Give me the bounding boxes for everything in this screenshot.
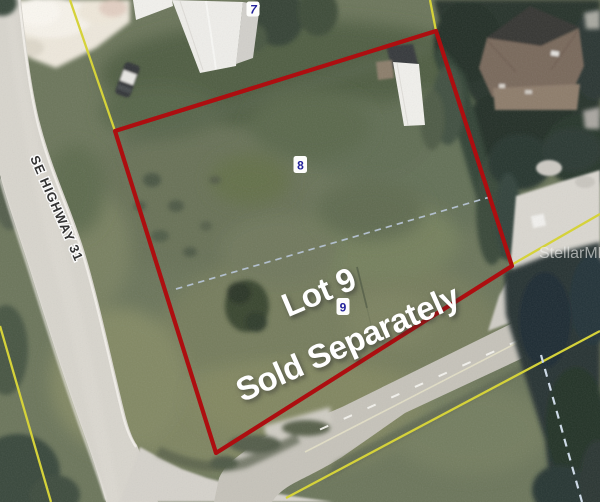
svg-text:StellarMLS: StellarMLS bbox=[539, 245, 600, 262]
svg-text:9: 9 bbox=[340, 301, 347, 315]
svg-text:8: 8 bbox=[297, 159, 304, 173]
